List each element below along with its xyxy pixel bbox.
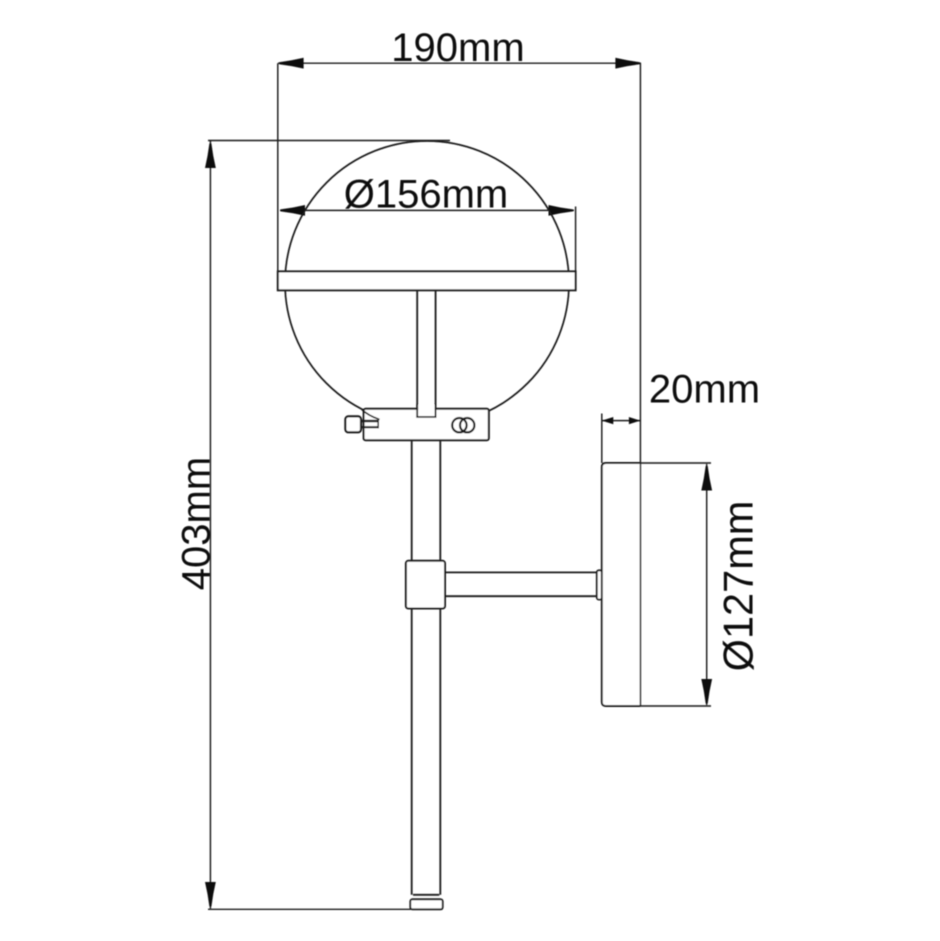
svg-text:20mm: 20mm xyxy=(649,368,760,412)
svg-text:190mm: 190mm xyxy=(391,26,524,70)
svg-text:Ø156mm: Ø156mm xyxy=(344,173,509,217)
svg-text:Ø127mm: Ø127mm xyxy=(714,501,761,672)
svg-text:403mm: 403mm xyxy=(175,457,219,590)
